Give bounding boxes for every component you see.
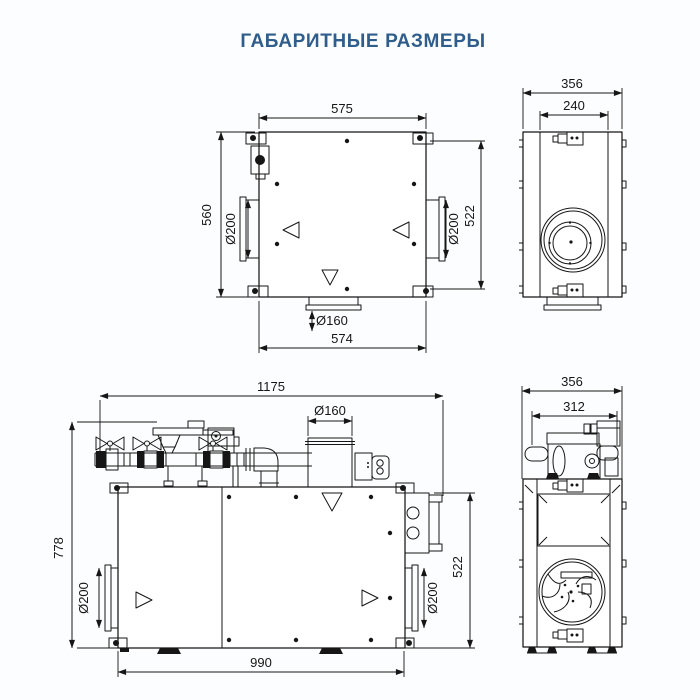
dim-label-port-top: Ø160 xyxy=(314,403,346,418)
dim-label-height-total: 778 xyxy=(51,537,66,559)
dim-label-width-body: 990 xyxy=(250,655,272,670)
dimensional-drawing-page: ГАБАРИТНЫЕ РАЗМЕРЫ xyxy=(0,0,700,700)
dim-label-height-right: 522 xyxy=(462,205,477,227)
front-view: 1175 Ø160 778 Ø200 Ø200 522 990 xyxy=(51,379,475,677)
drawing-canvas: 575 560 522 Ø200 Ø200 Ø160 574 xyxy=(0,0,700,700)
top-view: 575 560 522 Ø200 Ø200 Ø160 574 xyxy=(199,101,485,353)
dim-label-depth-inner: 312 xyxy=(563,399,585,414)
electrical-box-right xyxy=(405,493,442,553)
dim-label-top-width: 575 xyxy=(331,101,353,116)
side-view-upper-body xyxy=(519,132,626,310)
side-view-lower: 356 312 xyxy=(519,374,626,653)
dim-label-port-left: Ø200 xyxy=(76,582,91,614)
side-view-upper-dimensions: 356 240 xyxy=(523,76,622,130)
dim-label-port-bottom: Ø160 xyxy=(316,313,348,328)
pipe-elbow xyxy=(246,448,279,487)
dim-label-bottom-width: 574 xyxy=(331,331,353,346)
front-view-body xyxy=(95,421,442,654)
side-view-upper: 356 240 xyxy=(519,76,626,310)
dim-label-depth-inner: 240 xyxy=(563,98,585,113)
dim-label-depth-outer: 356 xyxy=(561,374,583,389)
dim-label-port-right: Ø200 xyxy=(446,213,461,245)
side-view-lower-dimensions: 356 312 xyxy=(522,374,622,479)
dim-label-depth-outer: 356 xyxy=(561,76,583,91)
side-view-lower-body xyxy=(519,421,626,653)
dim-label-height-body: 522 xyxy=(450,556,465,578)
electrical-box-top xyxy=(355,453,389,480)
dim-label-port-right: Ø200 xyxy=(425,582,440,614)
dim-label-port-left: Ø200 xyxy=(223,213,238,245)
dim-label-width-total: 1175 xyxy=(257,379,285,394)
top-view-body xyxy=(240,132,445,310)
pump-assembly xyxy=(525,421,620,479)
valve-actuator xyxy=(153,421,233,453)
dim-label-height-left: 560 xyxy=(199,204,214,226)
